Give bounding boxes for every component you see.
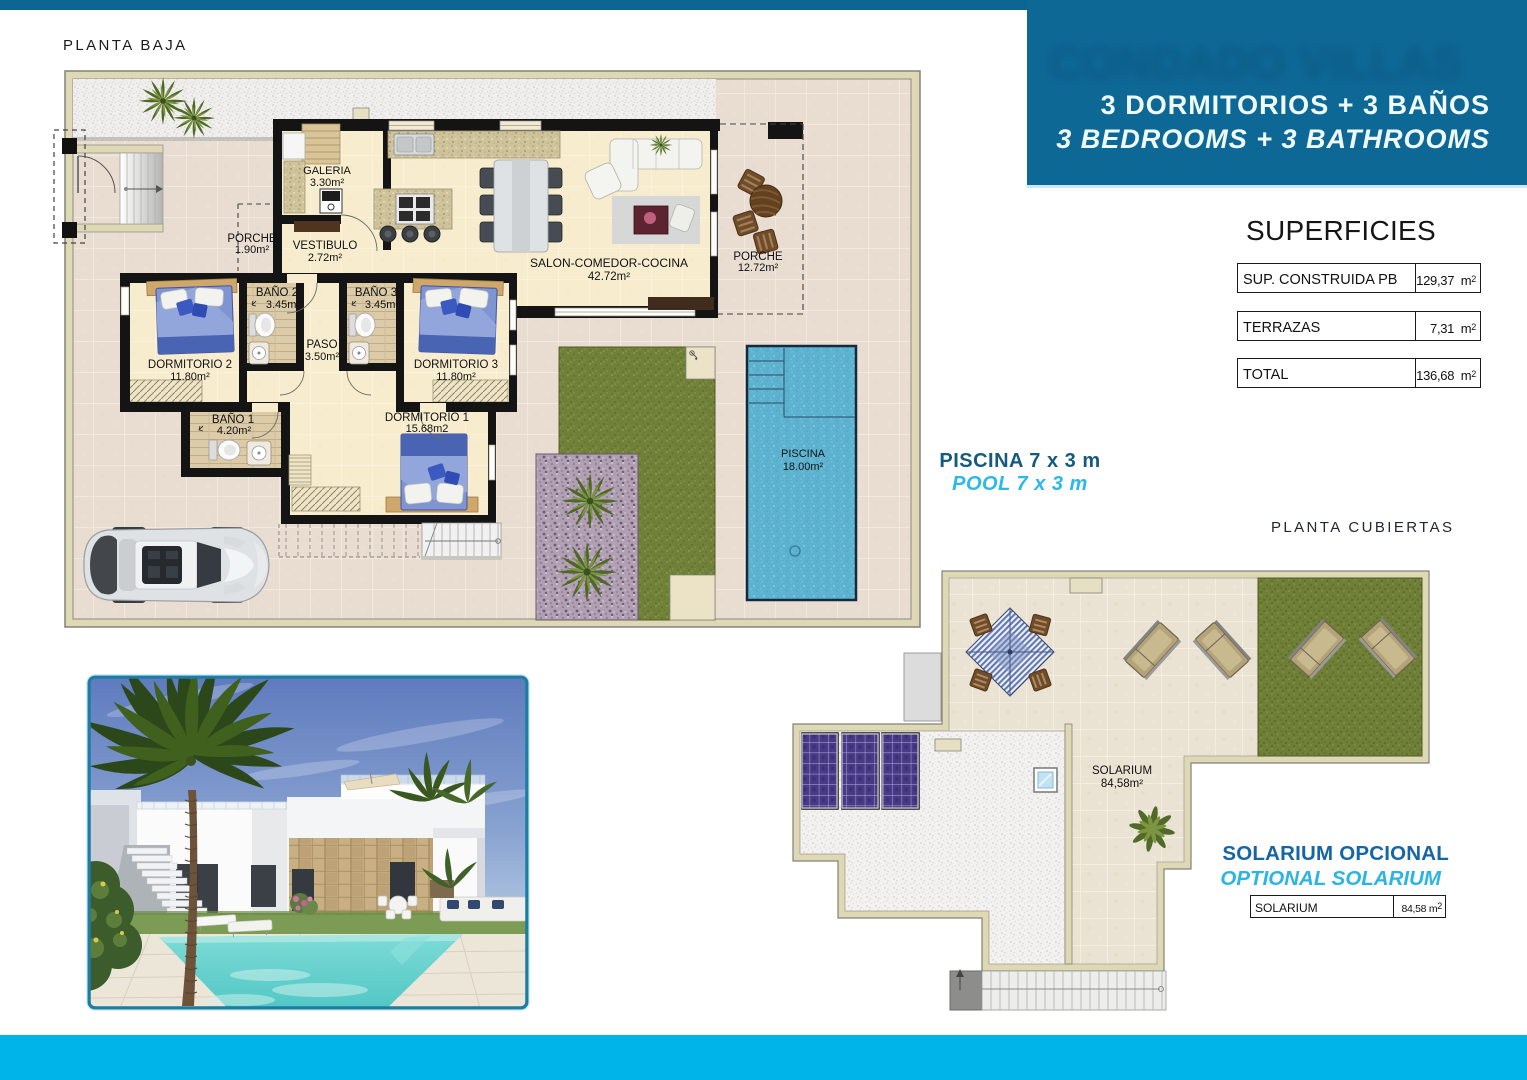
svg-text:DORMITORIO 2: DORMITORIO 2 [148,359,232,371]
svg-text:3.50m²: 3.50m² [305,351,340,363]
svg-text:VESTIBULO: VESTIBULO [293,240,358,252]
svg-text:3.45m²: 3.45m² [266,299,301,311]
svg-text:11.80m²: 11.80m² [436,371,476,383]
svg-text:SOLARIUM: SOLARIUM [1092,765,1152,777]
svg-text:18.00m²: 18.00m² [783,461,824,473]
svg-text:DORMITORIO 3: DORMITORIO 3 [414,359,498,371]
svg-text:BAÑO 2: BAÑO 2 [256,286,298,299]
svg-text:2.72m²: 2.72m² [308,252,343,264]
svg-text:84,58m²: 84,58m² [1101,778,1143,790]
svg-text:12.72m²: 12.72m² [738,262,779,274]
svg-text:3.30m²: 3.30m² [310,177,345,189]
svg-text:42.72m²: 42.72m² [588,271,630,283]
svg-text:GALERIA: GALERIA [303,165,351,177]
svg-text:4.20m²: 4.20m² [217,425,252,437]
svg-text:BAÑO 3: BAÑO 3 [355,286,397,299]
svg-text:15.68m2: 15.68m2 [406,423,449,435]
svg-text:PASO: PASO [306,339,337,351]
svg-text:1.90m²: 1.90m² [235,244,270,256]
svg-text:SALON-COMEDOR-COCINA: SALON-COMEDOR-COCINA [530,256,688,270]
svg-text:PISCINA: PISCINA [781,448,826,460]
svg-text:3.45m²: 3.45m² [365,299,400,311]
svg-text:11.80m²: 11.80m² [170,371,210,383]
